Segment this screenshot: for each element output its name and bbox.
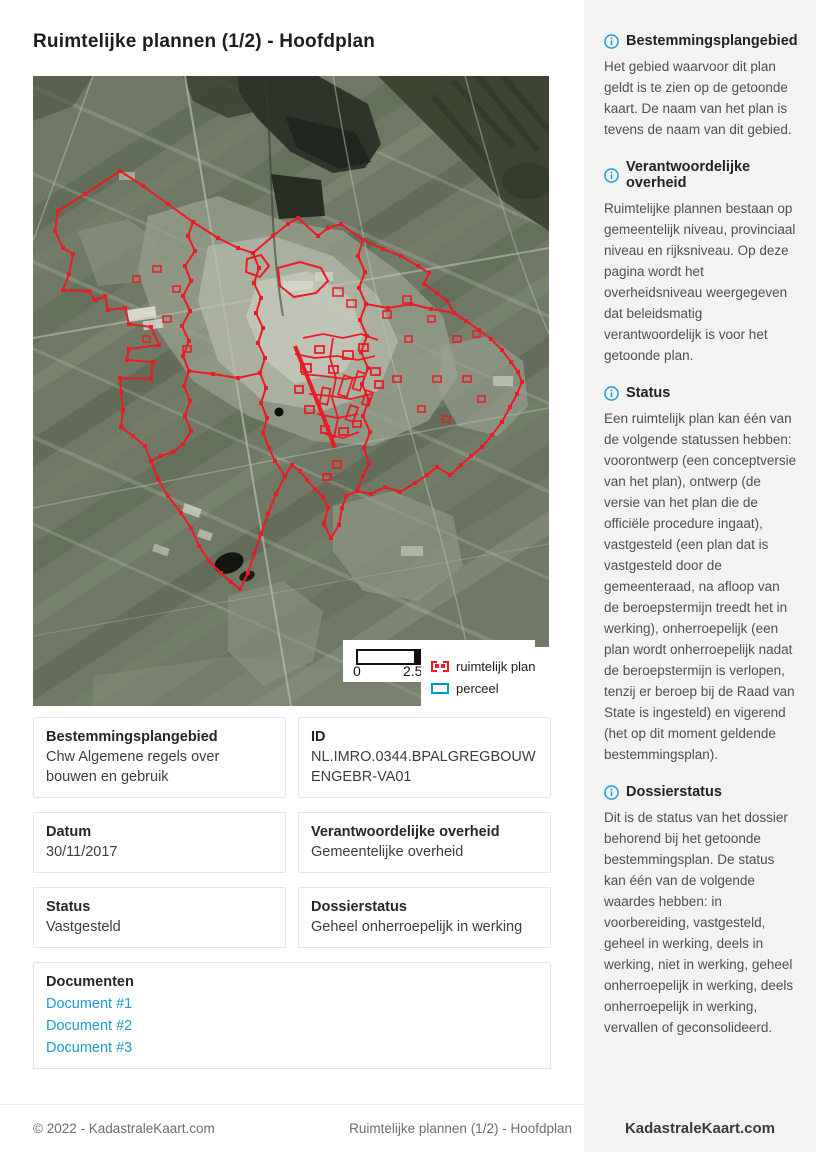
plan-swatch-icon (431, 661, 449, 672)
card-datum: Datum 30/11/2017 (33, 812, 286, 873)
info-sidebar: Bestemmingsplangebied Het gebied waarvoo… (584, 0, 816, 1152)
satellite-map (33, 76, 549, 706)
parcel-swatch-icon (431, 683, 449, 694)
card-label: Documenten (46, 972, 538, 992)
map-legend: ruimtelijk plan perceel (421, 647, 549, 706)
section-title: Dossierstatus (626, 784, 722, 800)
footer-copyright: © 2022 - KadastraleKaart.com (33, 1121, 215, 1136)
card-label: Bestemmingsplangebied (46, 727, 273, 747)
sidebar-section-dossierstatus: Dossierstatus Dit is de status van het d… (604, 784, 798, 1038)
sidebar-section-bestemmingsplangebied: Bestemmingsplangebied Het gebied waarvoo… (604, 33, 798, 140)
section-body: Het gebied waarvoor dit plan geldt is te… (604, 56, 798, 140)
sidebar-section-verantwoordelijke-overheid: Verantwoordelijke overheid Ruimtelijke p… (604, 159, 798, 366)
info-icon (604, 168, 619, 183)
card-value: Geheel onherroepelijk in werking (311, 917, 538, 937)
page-title: Ruimtelijke plannen (1/2) - Hoofdplan (33, 31, 551, 53)
section-body: Dit is de status van het dossier behoren… (604, 807, 798, 1038)
footer: © 2022 - KadastraleKaart.com Ruimtelijke… (0, 1104, 584, 1152)
card-value: Vastgesteld (46, 917, 273, 937)
section-heading: Dossierstatus (604, 784, 798, 800)
info-icon (604, 386, 619, 401)
card-bestemmingsplangebied: Bestemmingsplangebied Chw Algemene regel… (33, 717, 286, 798)
legend-item-parcel: perceel (431, 677, 549, 699)
legend-label: ruimtelijk plan (456, 659, 535, 674)
footer-page-title: Ruimtelijke plannen (1/2) - Hoofdplan (349, 1121, 572, 1136)
section-title: Verantwoordelijke overheid (626, 159, 798, 191)
card-label: Dossierstatus (311, 897, 538, 917)
card-dossierstatus: Dossierstatus Geheel onherroepelijk in w… (298, 887, 551, 948)
document-link-2[interactable]: Document #2 (46, 1016, 538, 1036)
card-label: ID (311, 727, 538, 747)
plan-map: 0 2.5 ruimtelijk plan perceel (33, 76, 549, 706)
section-heading: Bestemmingsplangebied (604, 33, 798, 49)
section-heading: Verantwoordelijke overheid (604, 159, 798, 191)
document-link-1[interactable]: Document #1 (46, 994, 538, 1014)
card-label: Verantwoordelijke overheid (311, 822, 538, 842)
legend-item-plan: ruimtelijk plan (431, 655, 549, 677)
card-id: ID NL.IMRO.0344.BPALGREGBOUWENGEBR-VA01 (298, 717, 551, 798)
card-documenten: Documenten Document #1 Document #2 Docum… (33, 962, 551, 1069)
card-value: Gemeentelijke overheid (311, 842, 538, 862)
sidebar-section-status: Status Een ruimtelijk plan kan één van d… (604, 385, 798, 765)
scale-label-start: 0 (353, 663, 361, 679)
section-body: Een ruimtelijk plan kan één van de volge… (604, 408, 798, 765)
footer-brand: KadastraleKaart.com (584, 1104, 816, 1152)
section-title: Bestemmingsplangebied (626, 33, 798, 49)
card-value: 30/11/2017 (46, 842, 273, 862)
info-icon (604, 34, 619, 49)
legend-label: perceel (456, 681, 499, 696)
plan-detail-cards: Bestemmingsplangebied Chw Algemene regel… (33, 717, 551, 1069)
document-link-3[interactable]: Document #3 (46, 1038, 538, 1058)
info-icon (604, 785, 619, 800)
card-status: Status Vastgesteld (33, 887, 286, 948)
card-verantwoordelijke-overheid: Verantwoordelijke overheid Gemeentelijke… (298, 812, 551, 873)
card-value: NL.IMRO.0344.BPALGREGBOUWENGEBR-VA01 (311, 747, 538, 787)
card-value: Chw Algemene regels over bouwen en gebru… (46, 747, 273, 787)
card-label: Datum (46, 822, 273, 842)
scale-label-mid: 2.5 (403, 663, 422, 679)
card-label: Status (46, 897, 273, 917)
section-heading: Status (604, 385, 798, 401)
section-title: Status (626, 385, 670, 401)
section-body: Ruimtelijke plannen bestaan op gemeentel… (604, 198, 798, 366)
main-content: Ruimtelijke plannen (1/2) - Hoofdplan (33, 0, 551, 1069)
